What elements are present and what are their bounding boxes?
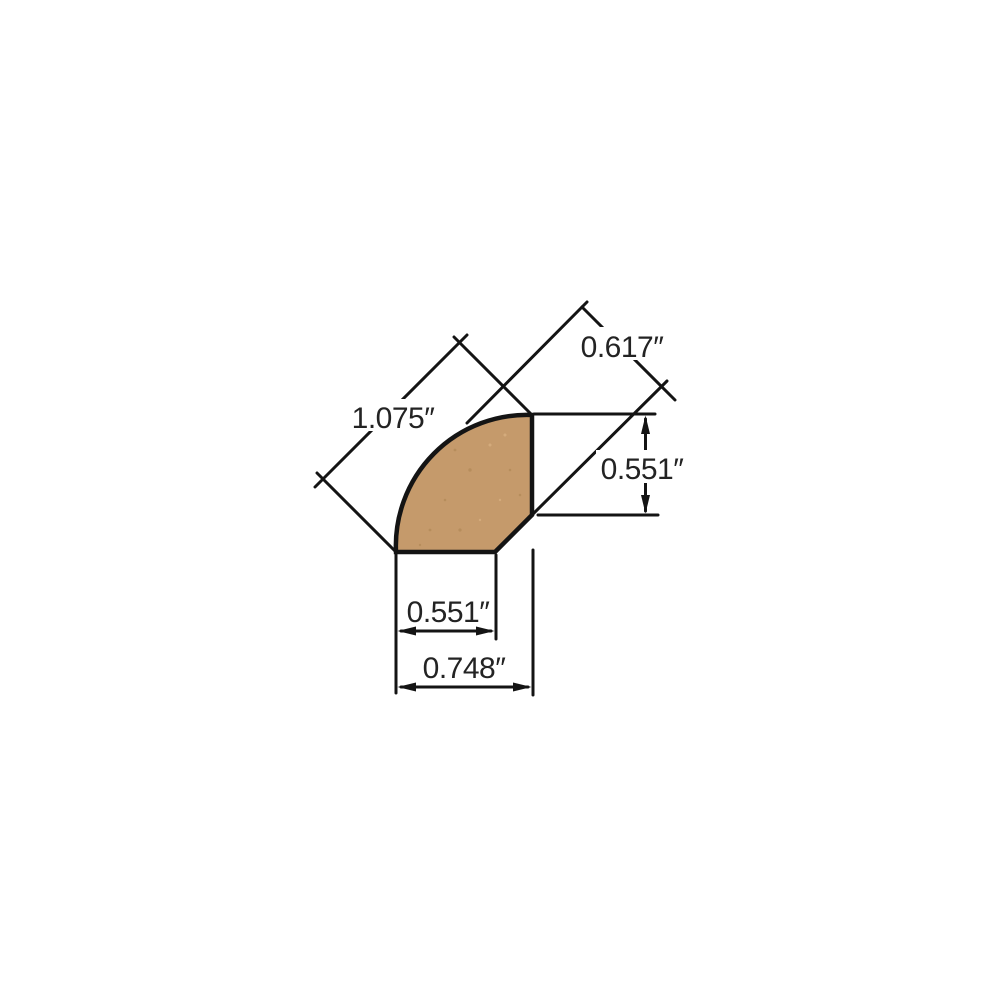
dimension-label-bottom-inner: 0.551″ [407, 596, 491, 629]
arrowhead-left [398, 683, 417, 692]
molding-profile-dimension-drawing: 1.075″ 0.617″ 0.551″ 0.551″ [0, 0, 1000, 1000]
dimension-right-height: 0.551″ [534, 414, 689, 515]
dimension-label-diagonal-top: 0.617″ [581, 331, 665, 364]
dimension-label-diagonal-overall: 1.075″ [352, 402, 436, 435]
diagram-canvas: 1.075″ 0.617″ 0.551″ 0.551″ [0, 0, 1000, 1000]
profile-shape-body [396, 415, 532, 552]
extension-line [467, 302, 587, 423]
extension-line [317, 473, 396, 552]
extension-line [454, 337, 532, 415]
arrowhead-down [641, 495, 650, 514]
profile-shape [396, 415, 532, 552]
dimension-label-right-height: 0.551″ [601, 453, 685, 486]
arrowhead-right [513, 683, 532, 692]
arrowhead-up [641, 416, 650, 435]
dimension-label-bottom-overall: 0.748″ [423, 652, 507, 685]
